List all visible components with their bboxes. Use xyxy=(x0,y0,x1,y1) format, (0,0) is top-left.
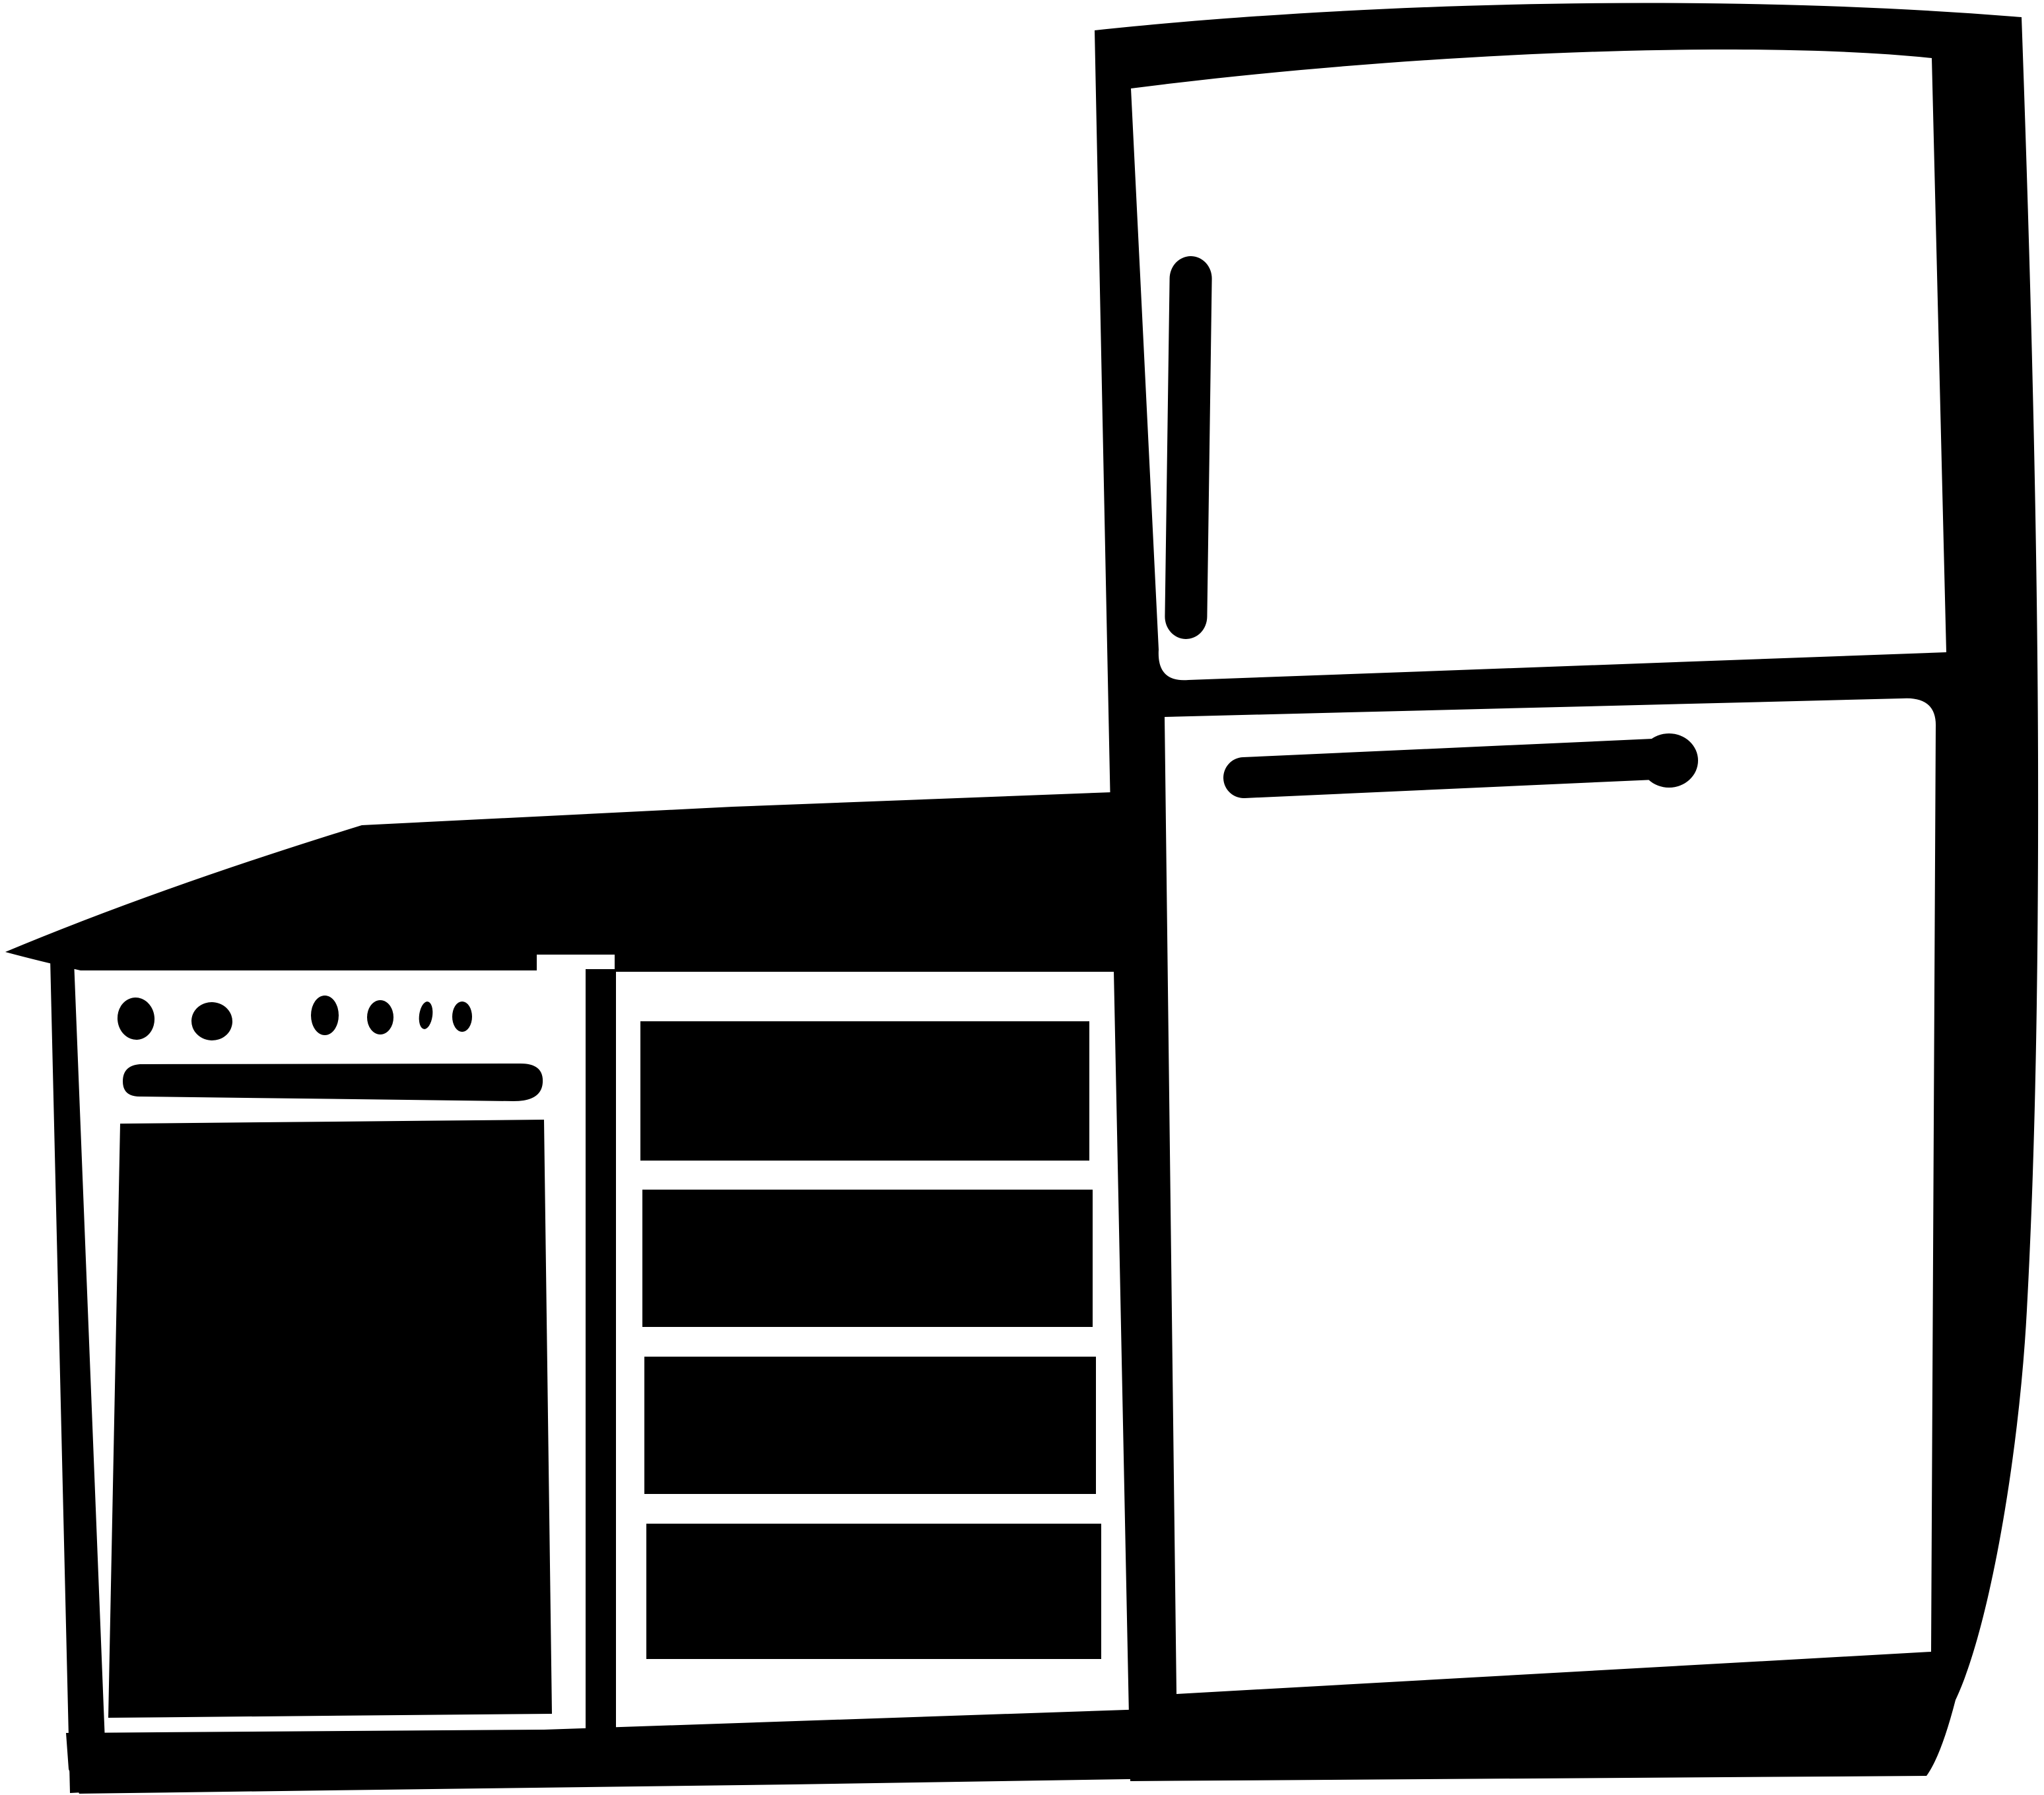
drawer-1 xyxy=(640,1021,1089,1161)
drawer-3 xyxy=(644,1357,1096,1494)
stove-knob-6 xyxy=(452,1001,472,1032)
drawer-4 xyxy=(646,1524,1101,1659)
drawer-2 xyxy=(642,1190,1093,1327)
fridge-door-handle-end xyxy=(1640,733,1698,788)
kitchen-clipart-canvas: Black and white kitchen clipart: stove, … xyxy=(0,0,2044,1795)
kitchen-clipart: Black and white kitchen clipart: stove, … xyxy=(0,0,2044,1795)
oven-door xyxy=(108,1120,552,1718)
stove-drawer-divider xyxy=(586,969,616,1735)
freezer-door xyxy=(1131,50,1946,680)
broiler-slot xyxy=(123,1064,543,1101)
refrigerator xyxy=(1095,3,2038,1781)
fridge-door-handle xyxy=(1244,759,1654,778)
freezer-handle xyxy=(1165,256,1212,640)
fridge-door xyxy=(1165,698,1936,1694)
stove-knob-4 xyxy=(367,1000,393,1034)
stove-knob-3 xyxy=(311,996,339,1035)
